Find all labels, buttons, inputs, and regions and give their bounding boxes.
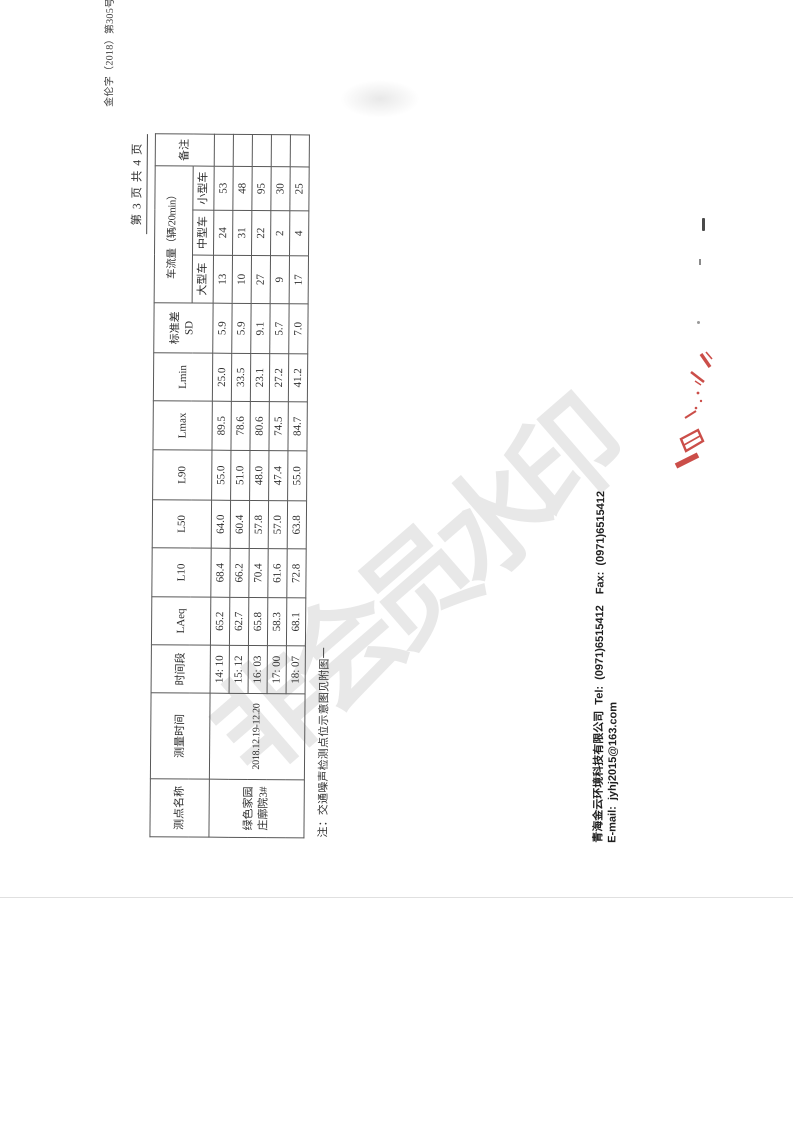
page-indicator: 第 3 页 共 4 页 xyxy=(128,134,148,234)
cell-remark xyxy=(290,135,309,167)
cell-period: 14: 10 xyxy=(210,645,229,693)
cell-large: 9 xyxy=(270,256,289,304)
col-header-l90: L90 xyxy=(153,450,212,500)
cell-l50: 64.0 xyxy=(211,500,230,548)
landscape-page: 金伦字（2018）第305号 第 3 页 共 4 页 测点名称 测量时间 时间段… xyxy=(0,0,793,1128)
col-header-medium-vehicle: 中型车 xyxy=(193,210,214,255)
cell-sd: 7.0 xyxy=(289,304,308,354)
cell-small: 25 xyxy=(290,167,309,211)
cell-laeq: 62.7 xyxy=(229,597,248,645)
cell-medium: 22 xyxy=(252,210,271,255)
cell-l10: 70.4 xyxy=(249,548,268,597)
scan-speck xyxy=(699,259,701,265)
cell-period: 17: 00 xyxy=(267,646,286,694)
document-number: 金伦字（2018）第305号 xyxy=(100,3,116,107)
cell-sd: 5.9 xyxy=(213,303,232,353)
cell-sd: 5.9 xyxy=(232,303,251,353)
cell-lmin: 33.5 xyxy=(231,353,250,401)
cell-lmax: 84.7 xyxy=(288,402,307,451)
cell-l90: 55.0 xyxy=(212,450,231,500)
cell-large: 10 xyxy=(232,255,251,303)
cell-period: 18: 07 xyxy=(286,646,305,694)
cell-small: 95 xyxy=(252,166,271,210)
cell-lmin: 23.1 xyxy=(250,353,269,401)
cell-period: 15: 12 xyxy=(229,645,248,693)
cell-l10: 72.8 xyxy=(287,549,306,598)
cell-remark xyxy=(214,134,233,166)
col-header-site: 测点名称 xyxy=(150,779,209,837)
cell-lmax: 89.5 xyxy=(212,401,231,450)
cell-laeq: 65.8 xyxy=(248,597,267,645)
col-header-sd: 标准差 SD xyxy=(154,303,213,353)
col-header-lmin: Lmin xyxy=(153,353,212,401)
site-name-line2: 庄廓院3# xyxy=(256,780,271,837)
col-header-remark: 备注 xyxy=(155,134,214,166)
cell-medium: 24 xyxy=(214,210,233,255)
cell-l50: 57.8 xyxy=(249,500,268,548)
cell-period: 16: 03 xyxy=(248,645,267,693)
cell-lmax: 80.6 xyxy=(250,401,269,450)
col-header-sd-cn: 标准差 xyxy=(169,303,183,352)
col-header-l50: L50 xyxy=(152,500,211,548)
cell-l90: 48.0 xyxy=(250,450,269,500)
cell-lmin: 41.2 xyxy=(288,354,307,402)
table-footnote: 注：交通噪声检测点位示意图见附图一 xyxy=(314,647,331,838)
scan-speck xyxy=(702,218,705,231)
cell-small: 53 xyxy=(214,166,233,210)
footer-email-line: E-mail: jyhj2015@163.com xyxy=(606,702,619,843)
cell-lmin: 27.2 xyxy=(269,354,288,402)
cell-medium: 31 xyxy=(233,210,252,255)
cell-laeq: 68.1 xyxy=(286,598,305,646)
cell-l50: 60.4 xyxy=(230,500,249,548)
cell-l10: 68.4 xyxy=(211,548,230,597)
cell-large: 27 xyxy=(251,255,270,303)
cell-remark xyxy=(233,134,252,166)
cell-sd: 9.1 xyxy=(251,303,270,353)
col-header-period: 时间段 xyxy=(151,645,210,693)
cell-large: 13 xyxy=(213,255,232,303)
cell-lmax: 78.6 xyxy=(231,401,250,450)
cell-l90: 51.0 xyxy=(231,450,250,500)
cell-lmin: 25.0 xyxy=(212,353,231,401)
cell-remark xyxy=(252,134,271,166)
scan-speck xyxy=(697,321,700,324)
col-header-l10: L10 xyxy=(152,548,211,597)
site-name-line1: 绿色家园 xyxy=(241,780,256,837)
footer-company-line: 青海金云环境科技有限公司 Tel: (0971)6515412 Fax: (09… xyxy=(589,491,608,843)
cell-large: 17 xyxy=(289,256,308,304)
cell-laeq: 65.2 xyxy=(210,597,229,645)
col-header-sd-en: SD xyxy=(183,303,197,352)
scan-edge-line xyxy=(0,897,793,898)
cell-site-name: 绿色家园 庄廓院3# xyxy=(209,779,304,838)
cell-medium: 4 xyxy=(290,211,309,256)
cell-l50: 57.0 xyxy=(268,501,287,549)
noise-measurement-table: 测点名称 测量时间 时间段 LAeq L10 L50 L90 Lmax Lmin… xyxy=(149,133,310,838)
scanned-report-page: { "document": { "doc_number": "金伦字（2018）… xyxy=(0,0,793,1122)
col-header-time: 测量时间 xyxy=(150,693,210,779)
cell-laeq: 58.3 xyxy=(267,598,286,646)
cell-l50: 63.8 xyxy=(287,501,306,549)
cell-l90: 47.4 xyxy=(269,451,288,501)
cell-lmax: 74.5 xyxy=(269,402,288,451)
col-header-small-vehicle: 小型车 xyxy=(193,166,214,210)
cell-sd: 5.7 xyxy=(270,304,289,354)
cell-remark xyxy=(271,135,290,167)
col-header-laeq: LAeq xyxy=(151,597,210,645)
cell-l90: 55.0 xyxy=(288,451,307,501)
col-header-traffic-group: 车流量（辆/20min） xyxy=(154,166,193,303)
cell-l10: 66.2 xyxy=(230,548,249,597)
col-header-large-vehicle: 大型车 xyxy=(192,255,213,303)
cell-medium: 2 xyxy=(271,211,290,256)
cell-l10: 61.6 xyxy=(268,549,287,598)
cell-small: 48 xyxy=(233,166,252,210)
col-header-lmax: Lmax xyxy=(153,401,212,450)
cell-small: 30 xyxy=(271,167,290,211)
cell-measure-date: 2018.12.19-12.20 xyxy=(209,693,305,780)
red-stamp-fragment xyxy=(672,348,718,481)
